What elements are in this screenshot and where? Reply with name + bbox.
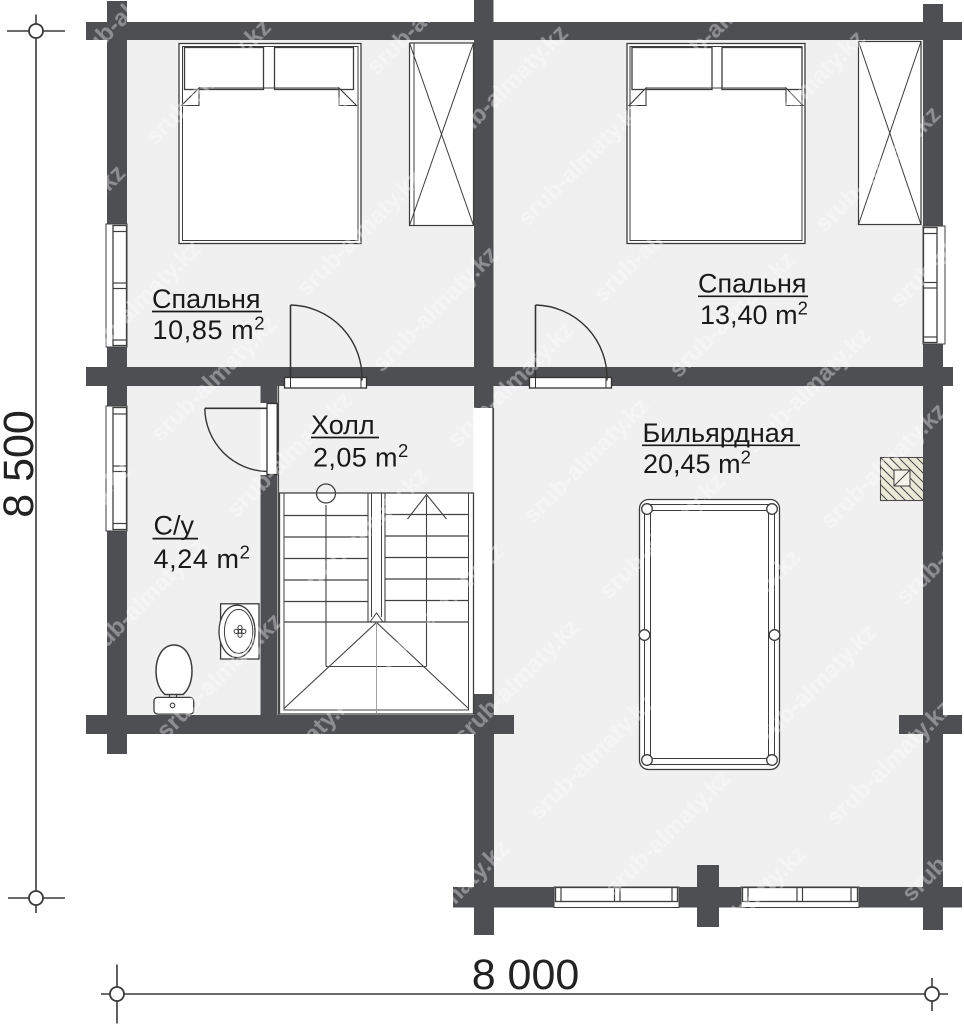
svg-text:2,05 m2: 2,05 m2 <box>313 440 409 473</box>
svg-text:8 000: 8 000 <box>472 951 580 999</box>
svg-text:13,40 m2: 13,40 m2 <box>700 298 808 331</box>
svg-text:8 500: 8 500 <box>0 410 43 518</box>
svg-text:Спальня: Спальня <box>152 284 261 314</box>
svg-text:4,24 m2: 4,24 m2 <box>154 542 251 575</box>
svg-text:С/у: С/у <box>154 511 195 541</box>
svg-text:Спальня: Спальня <box>698 269 807 299</box>
svg-text:Холл: Холл <box>311 410 375 440</box>
svg-text:10,85 m2: 10,85 m2 <box>153 313 266 346</box>
svg-text:20,45 m2: 20,45 m2 <box>643 447 751 480</box>
svg-text:Бильярдная: Бильярдная <box>643 418 795 448</box>
